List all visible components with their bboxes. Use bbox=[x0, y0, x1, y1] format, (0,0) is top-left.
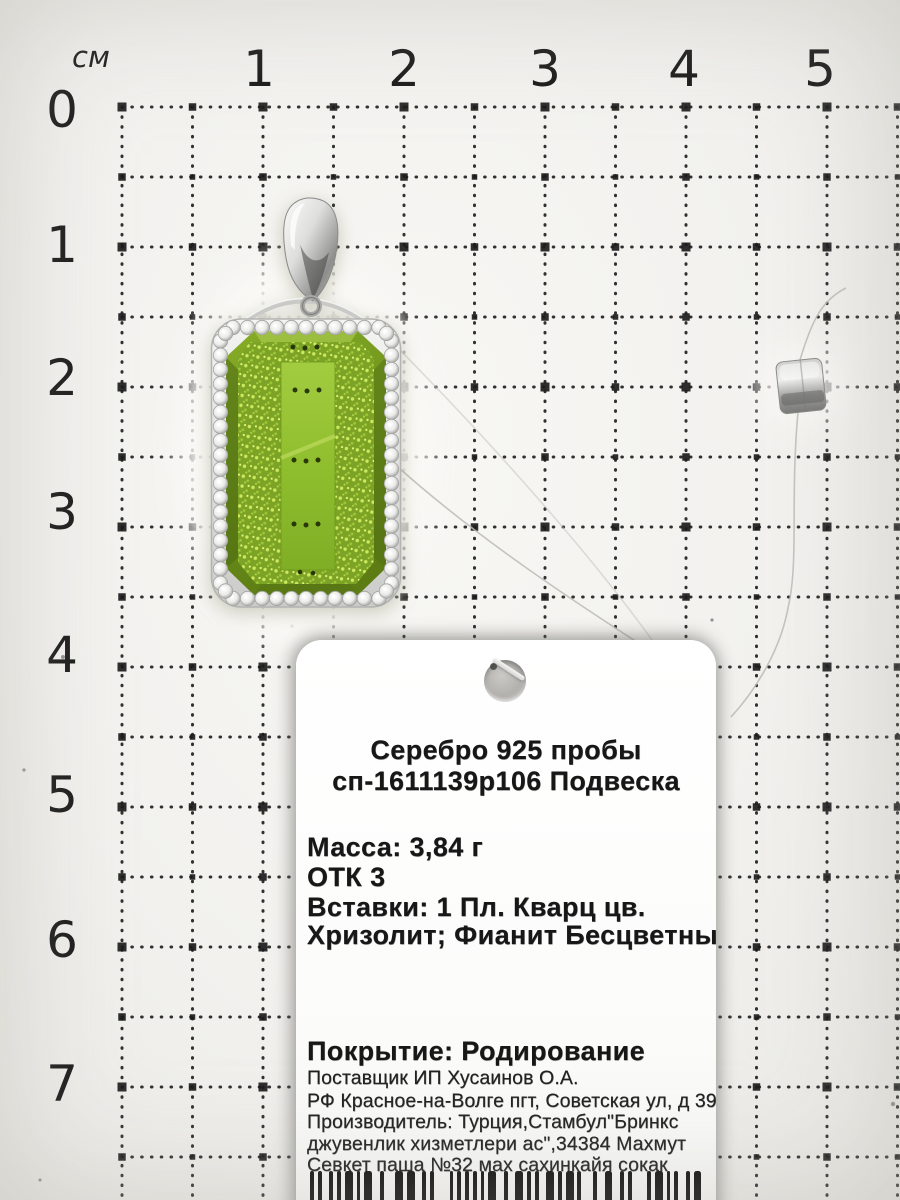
jewelry-price-tag: Серебро 925 пробы сп-1611139р106 Подвеск… bbox=[296, 640, 716, 1200]
cz-stone bbox=[328, 591, 342, 605]
cz-sparkle bbox=[273, 595, 277, 599]
barcode-gap bbox=[384, 1171, 396, 1200]
cz-sparkle bbox=[388, 437, 392, 441]
cz-stone bbox=[284, 320, 298, 334]
barcode-gap bbox=[477, 1171, 481, 1200]
cz-stone bbox=[213, 476, 227, 490]
cz-sparkle bbox=[346, 324, 350, 328]
cz-stone bbox=[384, 405, 398, 419]
cz-sparkle bbox=[388, 465, 392, 469]
cz-sparkle bbox=[317, 324, 321, 328]
cz-sparkle bbox=[388, 480, 392, 484]
cz-sparkle bbox=[332, 595, 336, 599]
cz-sparkle bbox=[222, 330, 226, 334]
cz-stone bbox=[213, 505, 227, 519]
cz-sparkle bbox=[388, 494, 392, 498]
barcode-gap bbox=[415, 1171, 423, 1200]
thread-below-bead bbox=[731, 412, 798, 717]
cz-stone bbox=[357, 320, 371, 334]
tag-article-line: сп-1611139р106 Подвеска bbox=[307, 766, 705, 797]
barcode-gap bbox=[508, 1171, 516, 1200]
cz-stone bbox=[384, 548, 398, 562]
cz-sparkle bbox=[244, 595, 248, 599]
tag-mass-line: Масса: 3,84 г bbox=[307, 832, 705, 863]
cz-stone bbox=[213, 519, 227, 533]
cz-stone bbox=[213, 562, 227, 576]
cz-sparkle bbox=[217, 437, 221, 441]
cz-sparkle bbox=[217, 451, 221, 455]
cz-sparkle bbox=[217, 579, 221, 583]
cz-sparkle bbox=[217, 494, 221, 498]
cz-sparkle bbox=[388, 565, 392, 569]
cz-stone bbox=[299, 591, 313, 605]
cz-sparkle bbox=[383, 587, 387, 591]
cz-sparkle bbox=[217, 537, 221, 541]
cz-stone bbox=[240, 591, 254, 605]
cz-sparkle bbox=[217, 408, 221, 412]
cz-sparkle bbox=[259, 595, 263, 599]
barcode-gap bbox=[496, 1171, 504, 1200]
silver-pendant bbox=[212, 198, 401, 607]
cz-stone bbox=[213, 548, 227, 562]
barcode-gap bbox=[581, 1171, 593, 1200]
cz-stone bbox=[384, 462, 398, 476]
tag-manufacturer-line-1: Производитель: Турция,Стамбул"Бринкс bbox=[307, 1111, 705, 1134]
crimp-bead bbox=[775, 358, 826, 415]
cz-sparkle bbox=[217, 551, 221, 555]
tag-address-line: РФ Красное-на-Волге пгт, Советская ул, д… bbox=[307, 1090, 705, 1113]
cz-stone bbox=[218, 326, 232, 340]
cz-sparkle bbox=[217, 508, 221, 512]
barcode-bar bbox=[605, 1171, 613, 1200]
cz-stone bbox=[213, 462, 227, 476]
cz-stone bbox=[384, 362, 398, 376]
tag-otk-line: ОТК 3 bbox=[307, 862, 705, 893]
cz-sparkle bbox=[388, 380, 392, 384]
cz-sparkle bbox=[388, 537, 392, 541]
cz-stone bbox=[213, 362, 227, 376]
cz-stone bbox=[384, 505, 398, 519]
cz-sparkle bbox=[388, 408, 392, 412]
cz-sparkle bbox=[217, 423, 221, 427]
cz-sparkle bbox=[375, 595, 379, 599]
stone-facet-left bbox=[226, 357, 240, 568]
cz-sparkle bbox=[229, 324, 233, 328]
cz-stone bbox=[213, 533, 227, 547]
cz-stone bbox=[213, 419, 227, 433]
cz-stone bbox=[384, 476, 398, 490]
cz-sparkle bbox=[388, 579, 392, 583]
cz-sparkle bbox=[361, 324, 365, 328]
cz-stone bbox=[384, 434, 398, 448]
cz-stone bbox=[218, 584, 232, 598]
cz-stone bbox=[213, 391, 227, 405]
cz-sparkle bbox=[217, 565, 221, 569]
barcode-gap bbox=[372, 1171, 380, 1200]
cz-sparkle bbox=[388, 451, 392, 455]
barcode-bar bbox=[407, 1171, 415, 1200]
cz-stone bbox=[213, 434, 227, 448]
cz-stone bbox=[384, 448, 398, 462]
barcode-bar bbox=[655, 1171, 663, 1200]
cz-stone bbox=[255, 591, 269, 605]
cz-sparkle bbox=[388, 522, 392, 526]
tag-metal-line: Серебро 925 пробы bbox=[307, 735, 705, 766]
cz-stone bbox=[384, 519, 398, 533]
cz-sparkle bbox=[346, 595, 350, 599]
cz-sparkle bbox=[302, 595, 306, 599]
barcode-gap bbox=[322, 1171, 330, 1200]
barcode-gap bbox=[353, 1171, 357, 1200]
barcode-gap bbox=[597, 1171, 605, 1200]
cz-sparkle bbox=[217, 394, 221, 398]
thread-to-tag bbox=[399, 468, 643, 646]
cz-stone bbox=[384, 348, 398, 362]
cz-stone bbox=[213, 491, 227, 505]
cz-sparkle bbox=[332, 324, 336, 328]
cz-sparkle bbox=[388, 394, 392, 398]
barcode-gap bbox=[663, 1171, 667, 1200]
cz-sparkle bbox=[361, 595, 365, 599]
barcode-bar bbox=[488, 1171, 496, 1200]
cz-stone bbox=[213, 377, 227, 391]
cz-sparkle bbox=[217, 380, 221, 384]
cz-stone bbox=[213, 348, 227, 362]
cz-stone bbox=[313, 320, 327, 334]
barcode-bar bbox=[515, 1171, 523, 1200]
barcode-gap bbox=[678, 1171, 686, 1200]
cz-sparkle bbox=[388, 366, 392, 370]
cz-sparkle bbox=[302, 324, 306, 328]
cz-stone bbox=[384, 377, 398, 391]
cz-sparkle bbox=[388, 551, 392, 555]
cz-sparkle bbox=[217, 366, 221, 370]
cz-stone bbox=[299, 320, 313, 334]
cz-stone bbox=[284, 591, 298, 605]
cz-stone bbox=[270, 591, 284, 605]
cz-stone bbox=[379, 326, 393, 340]
cz-sparkle bbox=[217, 522, 221, 526]
cz-stone bbox=[357, 591, 371, 605]
cz-sparkle bbox=[383, 330, 387, 334]
green-stone bbox=[226, 331, 386, 595]
barcode-bar bbox=[546, 1171, 554, 1200]
cz-stone bbox=[379, 584, 393, 598]
cz-stone bbox=[240, 320, 254, 334]
barcode-bar bbox=[395, 1171, 403, 1200]
cz-sparkle bbox=[273, 324, 277, 328]
tag-hole bbox=[484, 660, 526, 702]
barcode-gap bbox=[539, 1171, 547, 1200]
cz-sparkle bbox=[217, 351, 221, 355]
barcode-bar bbox=[364, 1171, 372, 1200]
cz-sparkle bbox=[388, 351, 392, 355]
cz-sparkle bbox=[217, 465, 221, 469]
barcode-bar bbox=[345, 1171, 353, 1200]
cz-sparkle bbox=[288, 595, 292, 599]
cz-sparkle bbox=[244, 324, 248, 328]
tag-inserts-line-2: Хризолит; Фианит Бесцветный bbox=[307, 920, 705, 951]
tag-coating-line: Покрытие: Родирование bbox=[307, 1036, 705, 1067]
cz-stone bbox=[213, 405, 227, 419]
cz-sparkle bbox=[375, 324, 379, 328]
barcode-bar bbox=[566, 1171, 574, 1200]
cz-sparkle bbox=[288, 324, 292, 328]
cz-sparkle bbox=[388, 508, 392, 512]
stone-facet-right bbox=[372, 357, 386, 568]
cz-stone bbox=[384, 491, 398, 505]
barcode-gap bbox=[434, 1171, 450, 1200]
cz-sparkle bbox=[317, 595, 321, 599]
cz-stone bbox=[384, 419, 398, 433]
cz-stone bbox=[343, 320, 357, 334]
cz-stone bbox=[213, 448, 227, 462]
cz-sparkle bbox=[259, 324, 263, 328]
cz-stone bbox=[313, 591, 327, 605]
tag-manufacturer-line-2: джувенлик хизметлери ас",34384 Махмут bbox=[307, 1133, 705, 1156]
cz-stone bbox=[384, 391, 398, 405]
cz-stone bbox=[384, 533, 398, 547]
cz-sparkle bbox=[217, 480, 221, 484]
barcode bbox=[310, 1171, 702, 1200]
tag-supplier-line: Поставщик ИП Хусаинов О.А. bbox=[307, 1067, 705, 1090]
cz-stone bbox=[328, 320, 342, 334]
barcode-gap bbox=[632, 1171, 648, 1200]
jewelry-photo-scene: см 1 2 3 4 5 0 1 2 3 4 5 6 7 bbox=[0, 0, 900, 1200]
cz-sparkle bbox=[222, 587, 226, 591]
cz-stone bbox=[255, 320, 269, 334]
cz-stone bbox=[384, 562, 398, 576]
cz-stone bbox=[270, 320, 284, 334]
cz-stone bbox=[343, 591, 357, 605]
barcode-bar bbox=[694, 1171, 702, 1200]
tag-inserts-line-1: Вставки: 1 Пл. Кварц цв. bbox=[307, 892, 705, 923]
barcode-gap bbox=[612, 1171, 620, 1200]
cz-sparkle bbox=[388, 423, 392, 427]
